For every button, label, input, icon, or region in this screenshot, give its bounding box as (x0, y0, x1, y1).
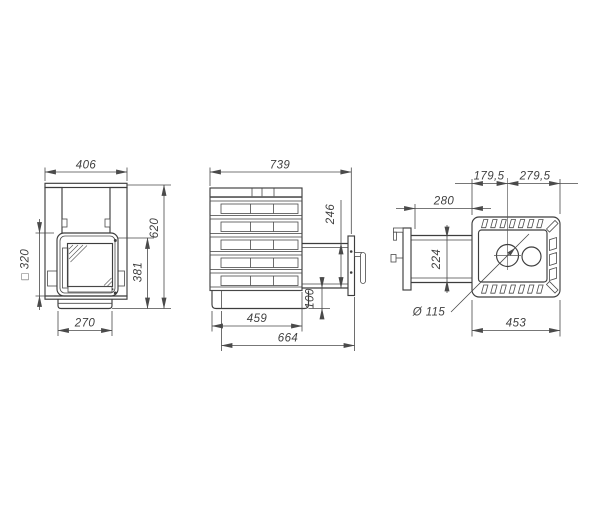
front-bottom-band (45, 296, 127, 299)
vent-slots-bottom-row (482, 285, 544, 293)
technical-drawing: 406 □ 320 270 381 620 (0, 0, 600, 522)
svg-text:739: 739 (270, 160, 291, 172)
svg-text:100: 100 (305, 288, 317, 309)
handle-grip-side (361, 253, 366, 284)
side-plinth (212, 291, 309, 309)
dim-side-plinth-height: 100 (305, 277, 331, 319)
drawing-canvas: 406 □ 320 270 381 620 (0, 0, 600, 522)
svg-text:246: 246 (325, 204, 337, 226)
dim-side-depth-with-tunnel: 664 (222, 297, 355, 351)
frame-bolt-top (350, 250, 353, 253)
vent-slot-corner-top (547, 221, 559, 233)
side-view: 739 246 100 459 664 (210, 160, 366, 352)
vent-slots-right-column (547, 221, 559, 294)
svg-text:279,5: 279,5 (519, 171, 551, 183)
stone-cage (210, 188, 302, 291)
svg-text:620: 620 (149, 218, 161, 239)
dim-front-base-width: 270 (58, 311, 112, 336)
dim-top-body-width: 453 (472, 300, 560, 337)
front-view: 406 □ 320 270 381 620 (20, 160, 172, 337)
svg-text:459: 459 (247, 313, 268, 325)
svg-text:453: 453 (506, 318, 527, 330)
second-opening (522, 247, 541, 266)
dim-top-tunnel-protrusion: 280 (396, 196, 491, 230)
side-fuel-tunnel (302, 236, 366, 296)
handle-arm-top (394, 228, 404, 232)
tunnel-door-frame-top (403, 228, 411, 290)
svg-text:Ø 115: Ø 115 (412, 307, 446, 319)
vent-slot-corner-bottom (547, 282, 559, 294)
dim-front-door-square: □ 320 (20, 219, 55, 310)
door-latch-dot (112, 288, 114, 290)
door-latch-top (391, 255, 396, 263)
stone-ledge-right (105, 219, 110, 227)
svg-text:280: 280 (433, 196, 455, 208)
svg-text:406: 406 (76, 160, 97, 172)
vent-slots-top-row (482, 220, 544, 228)
door-hinge-dot-bottom (114, 292, 117, 295)
front-top-plate (45, 183, 127, 187)
front-pedestal (58, 299, 112, 308)
dim-front-overall-width: 406 (45, 160, 127, 182)
svg-text:224: 224 (431, 249, 443, 270)
stove-door (57, 233, 118, 296)
top-view: 179,5 279,5 280 224 Ø 115 453 (391, 171, 578, 337)
dim-front-overall-height: 620 (127, 185, 171, 309)
svg-text:□ 320: □ 320 (20, 249, 32, 281)
svg-text:664: 664 (278, 333, 298, 345)
svg-text:270: 270 (74, 318, 96, 330)
svg-text:381: 381 (133, 262, 145, 282)
handle-stub-top (394, 232, 397, 240)
svg-text:179,5: 179,5 (474, 171, 505, 183)
frame-bolt-bottom (350, 271, 353, 274)
tunnel-door-frame-side (348, 236, 355, 296)
door-hinge-dot-top (114, 239, 117, 242)
stone-ledge-left (62, 219, 67, 227)
dim-side-body-depth: 459 (212, 292, 302, 332)
cage-strips (210, 198, 302, 291)
dim-top-chimney-diameter: Ø 115 (412, 234, 529, 319)
